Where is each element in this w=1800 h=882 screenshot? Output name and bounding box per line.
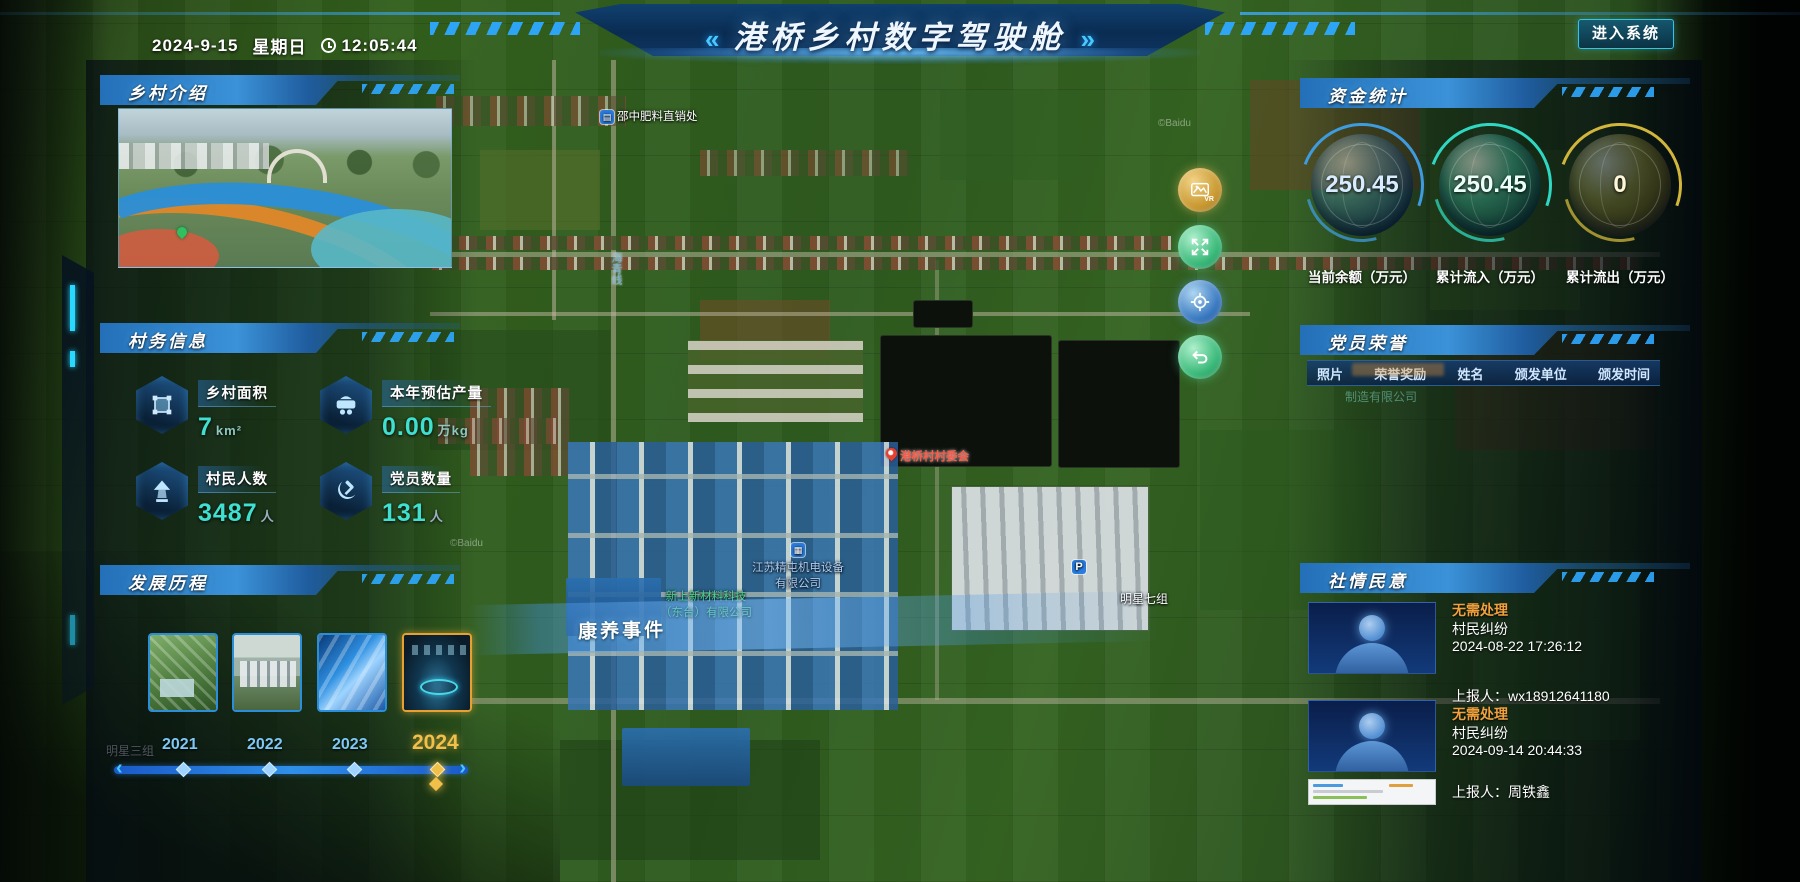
opinion-attachment-thumbnail[interactable] [1308,779,1436,805]
year-thumbnail-2024[interactable] [402,633,472,712]
gauge-value: 250.45 [1325,171,1398,199]
year-thumbnail-2022[interactable] [232,633,302,712]
opinion-reporter: 上报人：周铁鑫 [1452,782,1550,802]
year-2023[interactable]: 2023 [332,736,368,754]
fullscreen-button[interactable] [1178,225,1222,269]
intro-header-slashes [362,84,454,94]
date-text: 2024-9-15 [152,36,239,56]
year-2022[interactable]: 2022 [247,736,283,754]
year-2021[interactable]: 2021 [162,736,198,754]
stat-value: 0.00万kg [382,413,491,442]
opinion-reporter: 上报人：wx18912641180 [1452,686,1610,706]
building-icon: ▦ [791,543,805,557]
crosshair-icon [1189,291,1211,313]
top-header: «港桥乡村数字驾驶舱» 2024-9-15 星期日 12:05:44 [0,0,1800,64]
stat-label: 党员数量 [382,466,460,493]
stat-value: 3487人 [198,499,276,528]
development-header-slashes [362,574,454,584]
back-button[interactable] [1178,335,1222,379]
year-thumbnail-2023[interactable] [317,633,387,712]
map-watermark: ©Baidu [1158,118,1191,129]
opinions-title: 社情民意 [1328,567,1408,592]
header-wing-left [0,12,560,15]
vr-label: VR [1204,196,1214,203]
gauge-outflow: 0 [1565,130,1675,240]
stat-party-members: 党员数量 131人 [320,462,460,528]
gauge-value: 250.45 [1453,171,1526,199]
stat-label: 本年预估产量 [382,380,491,407]
opinions-header-slashes [1562,572,1654,582]
road-label: 海青线 [608,252,624,285]
expand-arrows-icon [1189,236,1211,258]
opinion-status: 无需处理 [1452,600,1508,620]
opinion-avatar-2[interactable] [1308,700,1436,772]
weekday-text: 星期日 [253,33,307,58]
poi-fertilizer-shop[interactable]: ▤邵中肥料直销处 [600,108,698,124]
village-photo[interactable] [118,108,452,268]
stat-villagers: 村民人数 3487人 [136,462,276,528]
funds-title: 资金统计 [1328,82,1408,107]
gauge-label-outflow: 累计流出（万元） [1550,266,1690,286]
year-2024[interactable]: 2024 [412,731,459,755]
stat-value: 7km² [198,413,276,442]
village-info-title: 村务信息 [128,327,208,352]
opinion-time: 2024-08-22 17:26:12 [1452,638,1582,654]
gauge-balance: 250.45 [1307,130,1417,240]
intro-title: 乡村介绍 [128,79,208,104]
gauge-label-inflow: 累计流入（万元） [1420,266,1560,286]
area-icon [136,376,188,434]
slider-right-arrow-icon[interactable]: › [459,757,466,780]
page-title: 港桥乡村数字驾驶舱 [734,20,1067,55]
timeline-slider[interactable]: ‹ › [114,766,468,774]
honors-ghost-smudge [1352,363,1444,376]
slider-left-arrow-icon[interactable]: ‹ [116,757,123,780]
vr-view-button[interactable]: VR [1178,168,1222,212]
stat-value: 131人 [382,499,460,528]
left-bezel-frame [62,255,94,705]
honors-title: 党员荣誉 [1328,329,1408,354]
gauge-value: 0 [1613,171,1626,199]
funds-header-slashes [1562,87,1654,97]
col-name: 姓名 [1457,364,1483,383]
gauge-inflow: 250.45 [1435,130,1545,240]
shop-icon: ▤ [600,110,614,124]
event-label[interactable]: 康养事件 [578,615,667,644]
title-chevron-right-icon: » [1081,24,1095,54]
locate-button[interactable] [1178,280,1222,324]
header-dashes-right [1205,22,1355,35]
stat-label: 乡村面积 [198,380,276,407]
poi-company-1[interactable]: ▦ 江苏精屯机电设备有限公司 [752,543,844,591]
opinion-type: 村民纠纷 [1452,619,1508,639]
opinion-status: 无需处理 [1452,704,1508,724]
development-title: 发展历程 [128,569,208,594]
villager-icon [136,462,188,520]
datetime: 2024-9-15 星期日 12:05:44 [152,33,418,58]
gauge-label-balance: 当前余额（万元） [1292,266,1432,286]
clock-icon [321,38,336,53]
header-dashes-left [430,22,580,35]
honors-header-slashes [1562,334,1654,344]
year-thumbnail-2021[interactable] [148,633,218,712]
parking-icon[interactable]: P [1072,560,1089,574]
cart-icon [320,376,372,434]
col-date: 颁发时间 [1598,364,1650,383]
dashboard-screen: ▤邵中肥料直销处 海青线 港桥村村委会 ▦ 江苏精屯机电设备有限公司 新上新材料… [0,0,1800,882]
title-chevron-left-icon: « [705,24,719,54]
opinion-type: 村民纠纷 [1452,723,1508,743]
stat-area: 乡村面积 7km² [136,376,276,442]
stat-yield: 本年预估产量 0.00万kg [320,376,491,442]
enter-system-button[interactable]: 进入系统 [1578,19,1674,49]
poi-village-committee[interactable]: 港桥村村委会 [900,448,969,464]
return-arrow-icon [1189,346,1211,368]
col-photo: 照片 [1317,364,1343,383]
time-text: 12:05:44 [342,36,418,56]
col-issuer: 颁发单位 [1515,364,1567,383]
opinion-avatar-1[interactable] [1308,602,1436,674]
honors-ghost-row: 制造有限公司 [1345,388,1417,405]
opinion-time: 2024-09-14 20:44:33 [1452,742,1582,758]
party-icon [320,462,372,520]
village-info-header-slashes [362,332,454,342]
header-wing-right [1240,12,1800,15]
stat-label: 村民人数 [198,466,276,493]
